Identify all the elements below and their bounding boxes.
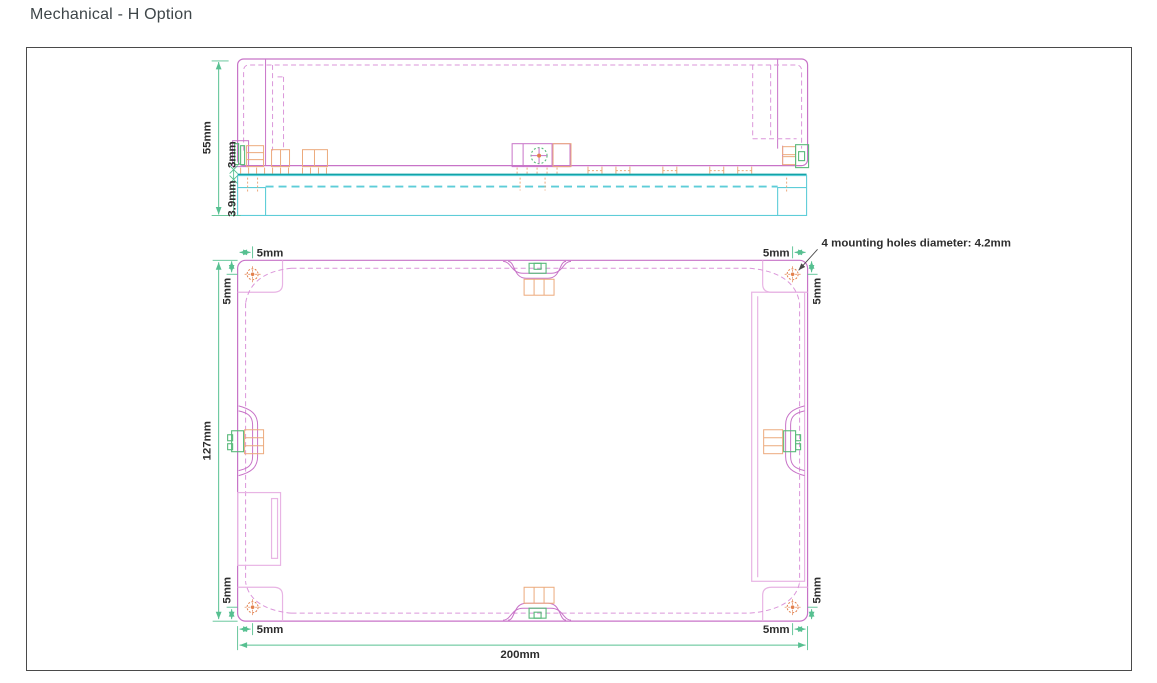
plan-case-outline (238, 260, 808, 621)
plan-tab-top-right (763, 260, 808, 292)
mounting-hole-bottom-right (785, 599, 801, 615)
dim-label-200mm: 200mm (500, 649, 540, 661)
mounting-hole-bottom-left (245, 599, 261, 615)
side-dashed-left (273, 65, 284, 151)
side-dashed-inner (244, 65, 802, 151)
plan-dashed-inner (246, 268, 800, 613)
dim-label-5mm: 5mm (257, 247, 284, 259)
mechanical-drawing: 55mm 3mm 3.9mm (27, 48, 1131, 670)
dim-pcb-gap: 3mm (227, 141, 239, 183)
plan-tab-bottom-right (763, 587, 808, 621)
dim-label-5mm: 5mm (222, 577, 234, 604)
dim-label-3mm: 3mm (227, 141, 239, 168)
dim-label-5mm: 5mm (812, 278, 824, 305)
side-base-steps (238, 188, 807, 216)
page-title: Mechanical - H Option (30, 6, 193, 24)
drawing-frame: 55mm 3mm 3.9mm (26, 47, 1132, 671)
dim-label-55mm: 55mm (202, 121, 214, 154)
side-view: 55mm 3mm 3.9mm (202, 59, 809, 217)
dim-overall-width: 200mm (238, 626, 808, 661)
side-base-plate (238, 176, 807, 216)
dim-base-thickness: 3.9mm (227, 180, 239, 216)
side-base-pins (248, 178, 787, 194)
plan-right-recess (752, 292, 805, 581)
side-inner-walls (266, 59, 778, 166)
mounting-hole-top-right (785, 266, 801, 282)
plan-left-connector (228, 406, 264, 476)
mounting-holes (245, 266, 801, 615)
dim-label-3-9mm: 3.9mm (227, 180, 239, 216)
plan-top-connector (503, 261, 571, 295)
dim-label-5mm: 5mm (222, 278, 234, 305)
plan-tab-top-left (238, 260, 283, 292)
plan-bottom-connector (503, 587, 571, 620)
side-pin-clusters (588, 167, 752, 174)
side-center-connector (512, 144, 571, 175)
plan-view: 127mm 200mm 5mm 5mm 5mm 5mm 5 (202, 237, 1011, 661)
dim-label-5mm: 5mm (812, 577, 824, 604)
dim-label-5mm: 5mm (257, 624, 284, 636)
plan-right-connector (764, 406, 805, 476)
plan-left-cutout (238, 493, 281, 566)
mounting-hole-annotation: 4 mounting holes diameter: 4.2mm (799, 237, 1011, 270)
dim-label-5mm: 5mm (763, 247, 790, 259)
side-pin-ticks-left (241, 168, 327, 174)
dim-label-5mm: 5mm (763, 624, 790, 636)
side-dashed-right (753, 65, 797, 139)
dim-label-127mm: 127mm (202, 421, 214, 461)
annotation-text: 4 mounting holes diameter: 4.2mm (822, 237, 1011, 249)
